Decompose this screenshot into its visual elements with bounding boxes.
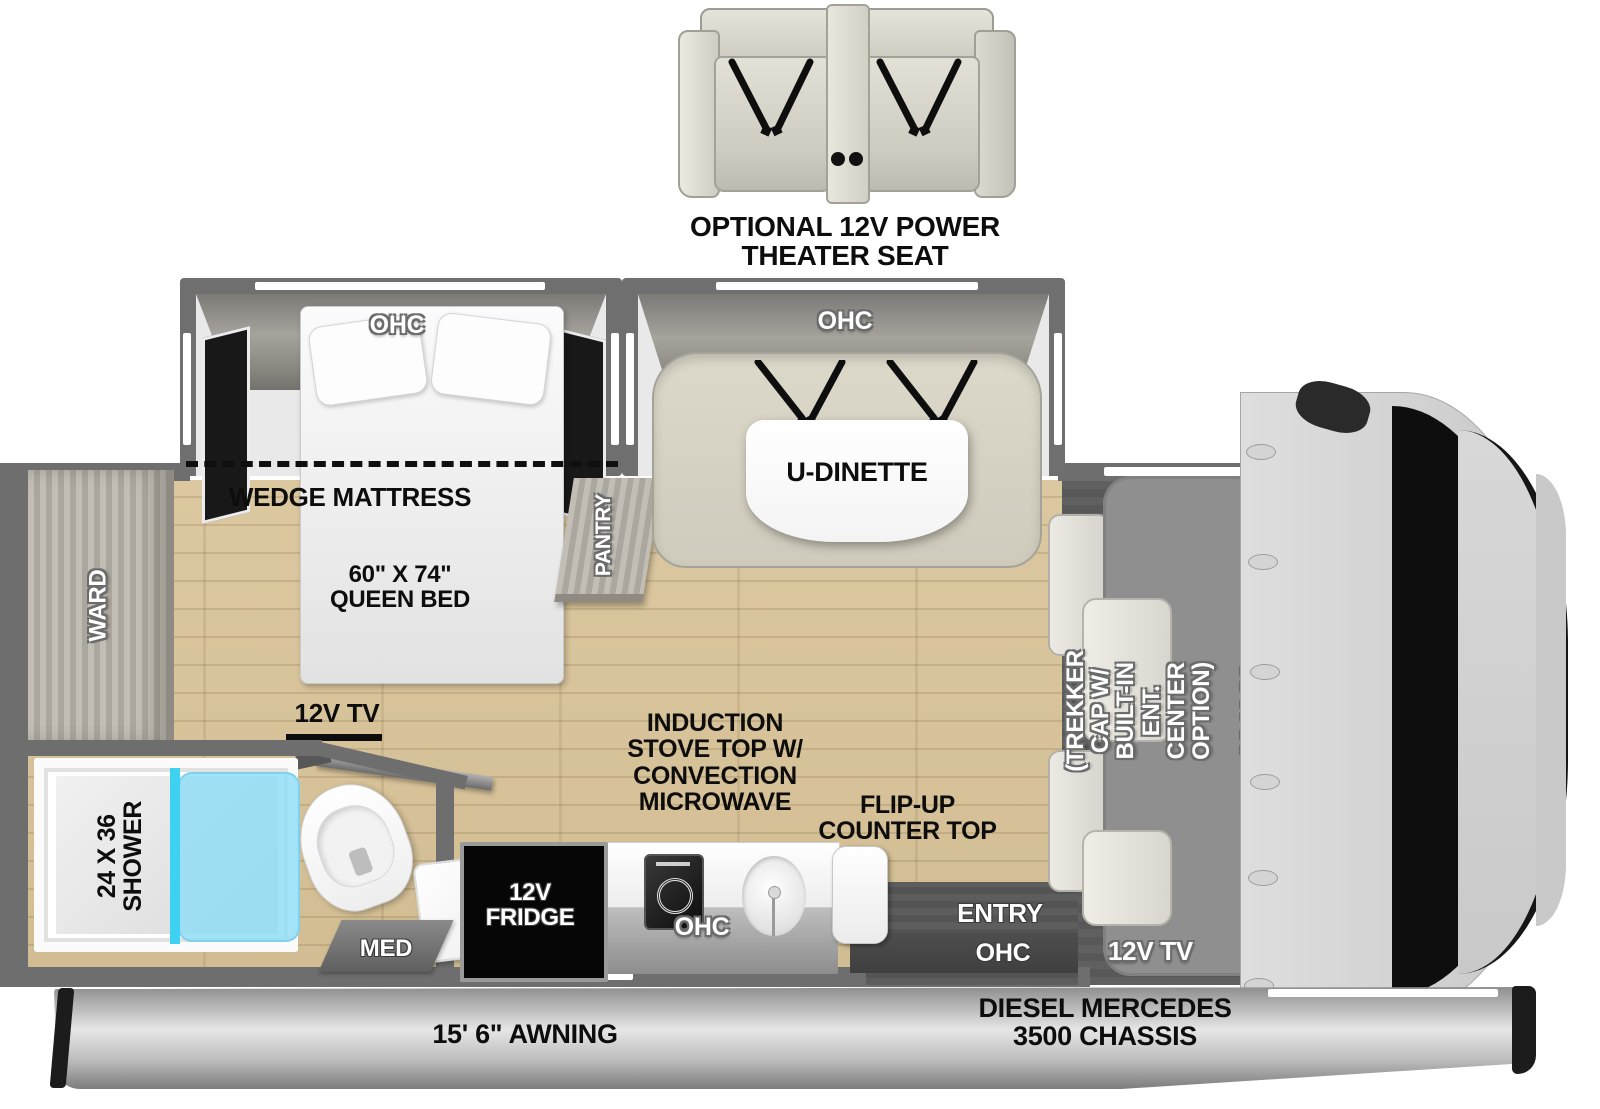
cupholder-icon xyxy=(849,152,863,166)
rv-floorplan-canvas: OPTIONAL 12V POWER THEATER SEAT WEDGE MA… xyxy=(0,0,1600,1109)
cupholder-icon xyxy=(831,152,845,166)
theater-seat-label: OPTIONAL 12V POWER THEATER SEAT xyxy=(645,212,1045,271)
u-dinette-label: U-DINETTE xyxy=(762,458,952,486)
bedroom-tv-label: 12V TV xyxy=(282,700,392,727)
entry-label: ENTRY xyxy=(940,900,1060,927)
rear-wall xyxy=(0,463,28,987)
window-strip-dinette-left xyxy=(626,333,634,445)
awning-end-cap-right xyxy=(1512,986,1536,1074)
slide-travel-dashed-line xyxy=(186,461,618,467)
medicine-cabinet-label: MED xyxy=(334,936,438,961)
kitchen-ohc-label: OHC xyxy=(662,914,742,940)
cab-handle-bump xyxy=(1246,444,1276,460)
stove-top-line xyxy=(656,862,690,866)
window-strip-bedroom-top xyxy=(255,282,545,290)
flip-counter-label: FLIP-UP COUNTER TOP xyxy=(800,792,1015,845)
cab-handle-bump xyxy=(1248,870,1278,886)
seatbelt-icon xyxy=(862,56,976,142)
bathroom-wall-top xyxy=(0,740,322,756)
fridge-label: 12V FRIDGE xyxy=(466,880,594,930)
cab-bumper xyxy=(1536,474,1566,926)
wedge-mattress-label: WEDGE MATTRESS xyxy=(205,484,495,511)
queen-bed-label: 60" X 74" QUEEN BED xyxy=(310,562,490,612)
dinette-ohc-label: OHC xyxy=(800,308,890,334)
theater-seat-armrest-right xyxy=(974,30,1016,198)
window-strip-bedroom-right xyxy=(611,333,619,445)
wardrobe-label: WARD xyxy=(85,570,110,642)
shower-label-wrap: 24 X 36 SHOWER xyxy=(62,770,178,942)
pantry-label-wrap: PANTRY xyxy=(560,470,648,600)
awning-label: 15' 6" AWNING xyxy=(390,1020,660,1048)
bed-pillow xyxy=(429,311,552,406)
window-strip-dinette-right xyxy=(1054,333,1062,445)
window-strip-awning xyxy=(1268,989,1498,997)
window-strip-bedroom-left xyxy=(183,333,191,445)
awning-bar xyxy=(54,987,1536,1089)
window-strip-front-wall xyxy=(1104,467,1244,476)
shower-label: 24 X 36 SHOWER xyxy=(94,801,147,912)
stove-burner-ring xyxy=(657,878,693,914)
cab-handle-bump xyxy=(1250,664,1280,680)
pantry-label: PANTRY xyxy=(593,494,615,576)
kitchen-faucet-base xyxy=(768,886,781,899)
bedroom-ohc-label: OHC xyxy=(352,312,442,338)
bunk-tv-label: 12V TV xyxy=(1108,938,1218,965)
wardrobe-label-wrap: WARD xyxy=(28,470,168,742)
bunk-label-wrap: (TREKKER CAP W/ BUILT-IN ENT. CENTER OPT… xyxy=(1103,476,1255,946)
shower-glass-door xyxy=(178,772,300,942)
window-strip-dinette-top xyxy=(716,282,978,290)
entry-ohc-label: OHC xyxy=(958,940,1048,966)
cab-handle-bump xyxy=(1250,774,1280,790)
seatbelt-icon xyxy=(714,56,828,142)
bunk-option-label: (TREKKER CAP W/ BUILT-IN ENT. CENTER OPT… xyxy=(1063,635,1214,787)
chassis-label: DIESEL MERCEDES 3500 CHASSIS xyxy=(960,994,1250,1051)
theater-seat-illustration xyxy=(678,4,1012,210)
cab-handle-bump xyxy=(1248,554,1278,570)
flip-up-counter xyxy=(832,846,888,944)
